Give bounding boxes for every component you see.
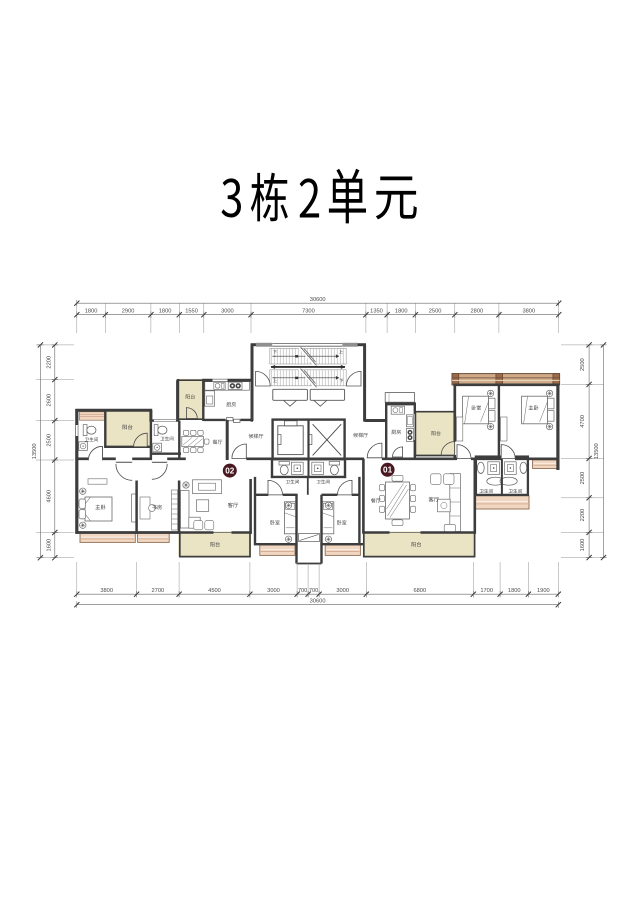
svg-text:2500: 2500 bbox=[429, 308, 442, 314]
svg-text:1350: 1350 bbox=[370, 308, 383, 314]
svg-text:30600: 30600 bbox=[310, 297, 326, 303]
svg-text:4500: 4500 bbox=[208, 588, 221, 594]
svg-text:6800: 6800 bbox=[413, 588, 426, 594]
svg-text:01: 01 bbox=[383, 466, 393, 475]
svg-text:2600: 2600 bbox=[46, 394, 52, 407]
svg-text:3000: 3000 bbox=[267, 588, 280, 594]
svg-text:2500: 2500 bbox=[580, 358, 586, 371]
svg-text:2700: 2700 bbox=[152, 588, 165, 594]
svg-text:4600: 4600 bbox=[46, 490, 52, 503]
svg-text:1700: 1700 bbox=[480, 588, 493, 594]
svg-text:3000: 3000 bbox=[221, 308, 234, 314]
svg-text:700: 700 bbox=[298, 588, 308, 594]
svg-text:3800: 3800 bbox=[522, 308, 535, 314]
svg-text:1800: 1800 bbox=[395, 308, 408, 314]
svg-text:4700: 4700 bbox=[580, 415, 586, 428]
svg-text:1800: 1800 bbox=[508, 588, 521, 594]
svg-text:2200: 2200 bbox=[580, 509, 586, 522]
svg-text:2500: 2500 bbox=[580, 472, 586, 485]
svg-text:2500: 2500 bbox=[46, 434, 52, 447]
svg-text:1900: 1900 bbox=[537, 588, 550, 594]
svg-text:13500: 13500 bbox=[32, 443, 38, 459]
svg-text:3800: 3800 bbox=[100, 588, 113, 594]
svg-text:1600: 1600 bbox=[46, 539, 52, 552]
svg-text:1550: 1550 bbox=[185, 308, 198, 314]
svg-text:1800: 1800 bbox=[159, 308, 172, 314]
svg-text:13500: 13500 bbox=[594, 443, 600, 459]
svg-text:2200: 2200 bbox=[46, 356, 52, 369]
svg-text:3000: 3000 bbox=[336, 588, 349, 594]
svg-text:2800: 2800 bbox=[471, 308, 484, 314]
svg-text:7300: 7300 bbox=[302, 308, 315, 314]
svg-text:1600: 1600 bbox=[580, 539, 586, 552]
svg-text:700: 700 bbox=[309, 588, 319, 594]
svg-text:1800: 1800 bbox=[85, 308, 98, 314]
svg-text:30600: 30600 bbox=[310, 599, 326, 605]
svg-text:2900: 2900 bbox=[122, 308, 135, 314]
svg-text:02: 02 bbox=[225, 467, 235, 476]
